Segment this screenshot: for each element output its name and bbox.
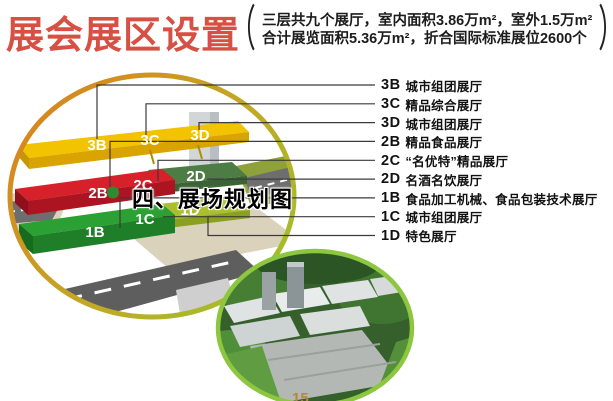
legend-item-code: 1C — [381, 209, 401, 225]
overlay-title: 四、展场规划图 — [132, 182, 293, 214]
slide: 展会展区设置 （ 三层共九个展厅，室内面积3.86万m²，室外1.5万m² 合计… — [0, 0, 613, 401]
legend-item-2c: 2C“名优特”精品展厅 — [381, 151, 598, 170]
legend-item-1d: 1D特色展厅 — [381, 226, 598, 245]
legend-item-label: 特色展厅 — [406, 226, 457, 245]
hall-legend: 3B城市组团展厅 3C精品综合展厅 3D城市组团展厅 2B精品食品展厅 2C“名… — [381, 76, 598, 245]
legend-item-label: 食品加工机械、食品包装技术展厅 — [406, 189, 598, 208]
legend-item-1c: 1C城市组团展厅 — [381, 208, 598, 227]
floor-label-3d: 3D — [190, 127, 209, 144]
legend-item-code: 2B — [381, 134, 401, 150]
legend-item-1b: 1B食品加工机械、食品包装技术展厅 — [381, 189, 598, 208]
legend-item-code: 3B — [381, 77, 401, 93]
legend-item-label: 城市组团展厅 — [406, 207, 483, 226]
legend-item-label: “名优特”精品展厅 — [406, 151, 509, 170]
legend-item-code: 3C — [381, 96, 401, 112]
floor-label-1b: 1B — [85, 224, 104, 241]
legend-item-code: 1B — [381, 190, 401, 206]
floor-label-3b: 3B — [87, 137, 106, 154]
hall-2b-marker-dot — [107, 187, 119, 199]
legend-item-code: 2D — [381, 171, 401, 187]
legend-item-code: 1D — [381, 228, 401, 244]
legend-item-2d: 2D名酒名饮展厅 — [381, 170, 598, 189]
floor-label-3c: 3C — [140, 132, 159, 149]
legend-item-label: 城市组团展厅 — [406, 114, 483, 133]
page-number: 15 — [292, 390, 309, 401]
legend-item-label: 名酒名饮展厅 — [406, 170, 483, 189]
legend-item-code: 2C — [381, 153, 401, 169]
legend-item-label: 城市组团展厅 — [406, 76, 483, 95]
legend-item-3d: 3D城市组团展厅 — [381, 114, 598, 133]
legend-item-label: 精品综合展厅 — [406, 95, 483, 114]
floor-label-2b: 2B — [88, 185, 107, 202]
legend-item-label: 精品食品展厅 — [406, 132, 483, 151]
legend-item-code: 3D — [381, 115, 401, 131]
legend-item-3c: 3C精品综合展厅 — [381, 95, 598, 114]
legend-item-3b: 3B城市组团展厅 — [381, 76, 598, 95]
legend-item-2b: 2B精品食品展厅 — [381, 132, 598, 151]
